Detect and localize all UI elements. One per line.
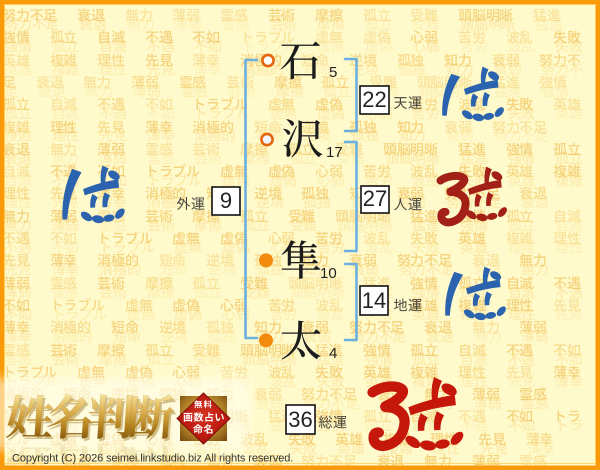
- svg-text:10: 10: [320, 265, 337, 282]
- svg-text:17: 17: [326, 144, 343, 161]
- svg-text:Copyright (C) 2026 seimei.link: Copyright (C) 2026 seimei.linkstudio.biz…: [12, 453, 293, 465]
- svg-text:9: 9: [220, 188, 232, 213]
- svg-text:14: 14: [362, 288, 386, 313]
- svg-text:27: 27: [363, 186, 387, 211]
- svg-text:4: 4: [329, 345, 337, 362]
- svg-text:5: 5: [329, 64, 337, 81]
- svg-text:36: 36: [288, 407, 312, 432]
- svg-text:22: 22: [362, 87, 386, 112]
